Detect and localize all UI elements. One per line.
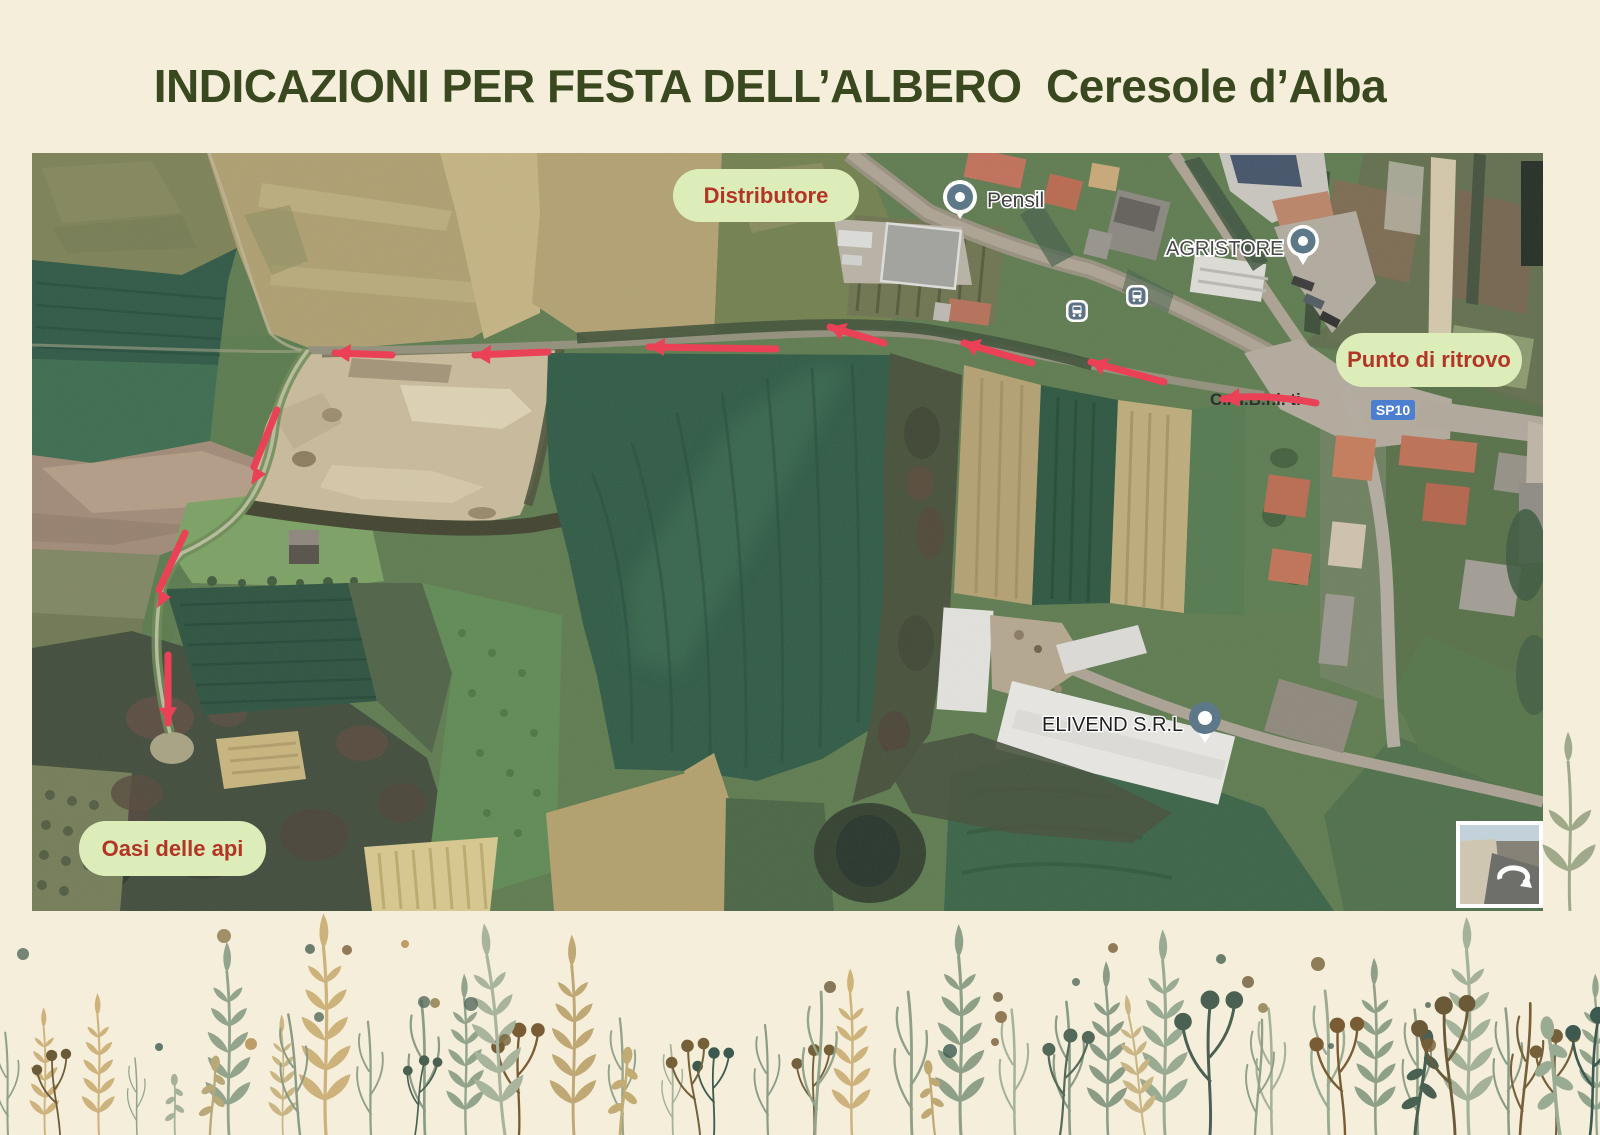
- svg-text:ELIVEND S.R.L: ELIVEND S.R.L: [1042, 714, 1183, 736]
- svg-text:SP10: SP10: [1376, 402, 1410, 418]
- svg-text:AGRISTORE: AGRISTORE: [1166, 238, 1283, 260]
- svg-text:Pensil: Pensil: [987, 189, 1044, 212]
